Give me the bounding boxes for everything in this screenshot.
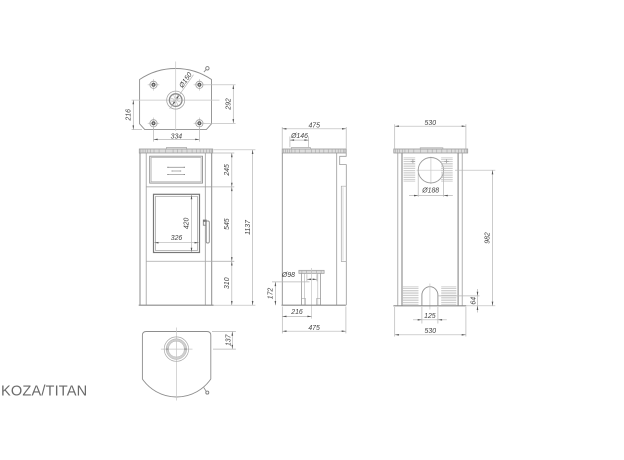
svg-text:245: 245 bbox=[224, 164, 231, 177]
svg-text:982: 982 bbox=[484, 232, 491, 244]
svg-text:Ø98: Ø98 bbox=[281, 272, 295, 279]
svg-text:1137: 1137 bbox=[245, 219, 252, 235]
svg-text:216: 216 bbox=[290, 309, 303, 316]
svg-text:545: 545 bbox=[224, 218, 231, 230]
svg-text:475: 475 bbox=[308, 325, 320, 332]
svg-text:475: 475 bbox=[308, 123, 320, 130]
svg-text:334: 334 bbox=[171, 134, 183, 141]
svg-text:Ø188: Ø188 bbox=[421, 188, 439, 195]
svg-text:326: 326 bbox=[171, 235, 183, 242]
svg-text:292: 292 bbox=[226, 98, 233, 111]
svg-text:137: 137 bbox=[226, 333, 233, 346]
svg-text:172: 172 bbox=[267, 288, 274, 300]
svg-text:530: 530 bbox=[425, 120, 437, 127]
svg-text:216: 216 bbox=[126, 109, 133, 122]
svg-text:125: 125 bbox=[424, 313, 436, 320]
svg-text:Ø146: Ø146 bbox=[290, 133, 308, 140]
svg-text:64: 64 bbox=[471, 297, 478, 305]
svg-text:310: 310 bbox=[224, 277, 231, 289]
svg-text:530: 530 bbox=[425, 328, 437, 335]
svg-text:420: 420 bbox=[183, 217, 190, 229]
svg-text:KOZA/TITAN: KOZA/TITAN bbox=[1, 384, 87, 400]
svg-text:Ø150: Ø150 bbox=[178, 71, 194, 90]
